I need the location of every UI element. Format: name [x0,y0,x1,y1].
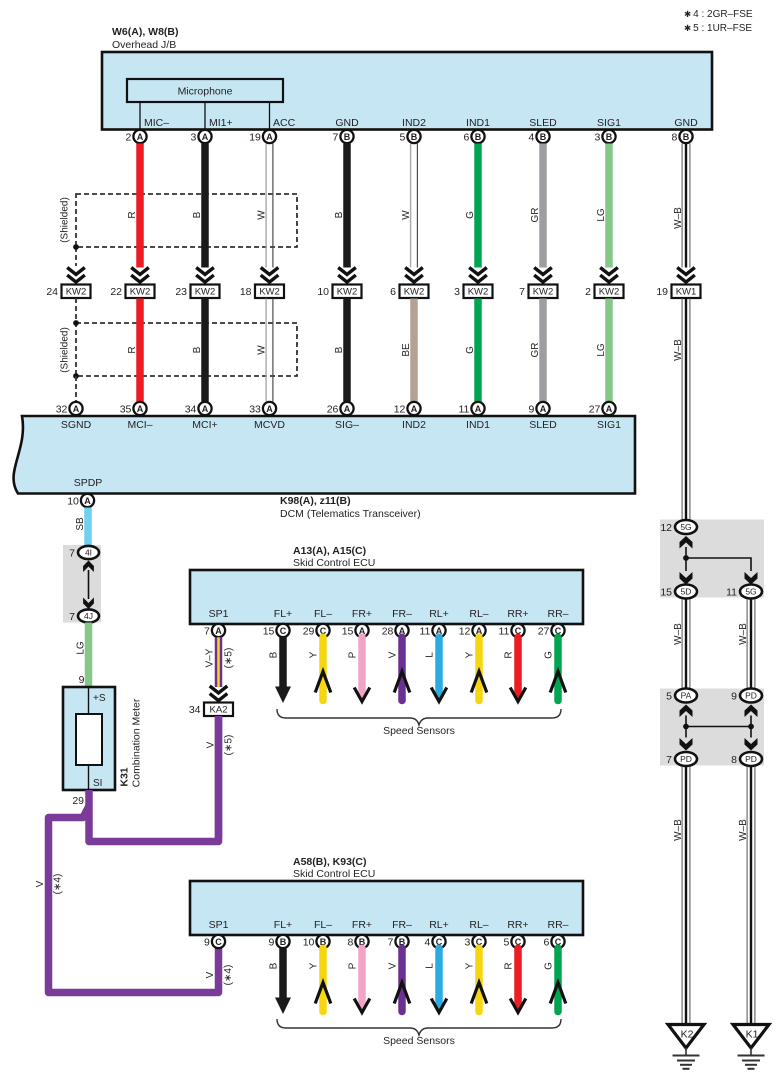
svg-text:IND2: IND2 [402,117,426,129]
svg-text:24: 24 [46,286,58,298]
svg-text:4I: 4I [85,548,92,558]
svg-text:12: 12 [394,403,406,415]
svg-text:K2: K2 [681,1029,694,1041]
svg-text:KW2: KW2 [66,287,87,298]
svg-text:7: 7 [519,286,525,298]
svg-text:W: W [257,345,268,355]
svg-text:G: G [544,962,555,970]
svg-text:W–B: W–B [738,819,749,841]
svg-text:28: 28 [382,625,394,637]
svg-text:RR+: RR+ [507,919,528,931]
svg-text:A: A [540,404,547,414]
svg-text:34: 34 [189,704,201,716]
svg-text:A: A [606,404,613,414]
svg-text:15: 15 [342,625,354,637]
svg-text:B: B [192,211,203,218]
svg-text:3: 3 [454,286,460,298]
svg-text:2: 2 [126,131,132,143]
svg-text:Skid Control ECU: Skid Control ECU [293,868,375,880]
svg-text:BE: BE [401,343,412,357]
svg-text:6: 6 [390,286,396,298]
svg-text:A: A [215,626,222,636]
svg-text:A: A [411,404,418,414]
svg-text:P: P [348,962,359,969]
svg-text:7: 7 [69,547,75,559]
svg-text:19: 19 [249,131,261,143]
svg-text:A: A [73,404,80,414]
svg-text:SGND: SGND [61,419,92,431]
svg-text:29: 29 [72,795,84,807]
svg-text:(∗4): (∗4) [53,874,64,895]
svg-text:W: W [257,210,268,220]
svg-text:B: B [269,962,280,969]
svg-text:RL–: RL– [469,919,488,931]
svg-text:12: 12 [660,522,672,534]
svg-text:W–B: W–B [673,207,684,229]
svg-text:G: G [544,651,555,659]
svg-text:V: V [205,971,216,978]
svg-text:LG: LG [76,641,87,655]
svg-text:A: A [137,132,144,142]
svg-text:L: L [425,963,436,969]
svg-text:SIG1: SIG1 [597,419,621,431]
svg-text:SLED: SLED [529,117,557,129]
svg-text:FL–: FL– [314,608,332,620]
svg-text:RL–: RL– [469,608,488,620]
svg-text:5: 5 [400,131,406,143]
svg-text:B: B [192,346,203,353]
svg-text:11: 11 [726,586,737,598]
svg-text:PD: PD [745,754,757,764]
svg-text:29: 29 [303,625,315,637]
svg-text:5G: 5G [680,522,691,532]
svg-text:Overhead J/B: Overhead J/B [112,39,176,51]
svg-text:PA: PA [681,691,692,701]
svg-text:R: R [504,651,515,658]
svg-text:8: 8 [348,936,354,948]
svg-text:32: 32 [56,403,68,415]
svg-text:V: V [388,651,399,658]
svg-text:RL+: RL+ [429,608,449,620]
svg-text:(∗5): (∗5) [224,735,235,756]
svg-text:+S: +S [93,693,106,704]
svg-text:SIG–: SIG– [335,419,359,431]
svg-text:3: 3 [595,131,601,143]
svg-text:KW2: KW2 [337,287,358,298]
svg-text:G: G [465,346,476,354]
svg-text:IND2: IND2 [402,419,426,431]
svg-text:9: 9 [269,936,275,948]
svg-text:FR+: FR+ [352,919,372,931]
svg-text:Microphone: Microphone [178,86,233,98]
svg-text:7: 7 [333,131,339,143]
svg-text:23: 23 [175,286,187,298]
svg-text:3: 3 [465,936,471,948]
svg-text:33: 33 [249,403,261,415]
svg-text:7: 7 [204,625,210,637]
svg-text:K31: K31 [119,767,131,786]
svg-text:12: 12 [459,625,471,637]
svg-text:22: 22 [110,286,122,298]
svg-text:SIG1: SIG1 [597,117,621,129]
svg-text:A: A [344,404,351,414]
svg-text:R: R [127,211,138,218]
svg-text:DCM (Telematics Transceiver): DCM (Telematics Transceiver) [280,508,421,520]
svg-text:B: B [606,132,613,142]
svg-text:B: B [344,132,351,142]
svg-text:FR–: FR– [392,919,412,931]
svg-text:5G: 5G [745,587,756,597]
svg-text:MIC–: MIC– [144,117,169,129]
svg-text:W: W [401,210,412,220]
svg-text:KW2: KW2 [195,287,216,298]
svg-text:FR–: FR– [392,608,412,620]
svg-text:A: A [475,404,482,414]
svg-text:W–B: W–B [673,623,684,645]
svg-text:6: 6 [464,131,470,143]
svg-text:26: 26 [327,403,339,415]
svg-text:LG: LG [596,343,607,357]
svg-text:A: A [266,132,273,142]
svg-text:9: 9 [204,936,210,948]
svg-text:V: V [35,880,46,887]
svg-text:Y: Y [465,962,476,969]
svg-text:KW1: KW1 [676,287,697,298]
svg-text:KW2: KW2 [599,287,620,298]
svg-text:RR–: RR– [547,608,568,620]
svg-text:FL–: FL– [314,919,332,931]
svg-text:PD: PD [745,691,757,701]
svg-text:A: A [84,496,91,506]
svg-text:B: B [334,346,345,353]
svg-text:5: 5 [504,936,510,948]
svg-text:MCI–: MCI– [127,419,152,431]
svg-text:G: G [465,211,476,219]
svg-text:7: 7 [666,754,672,766]
svg-text:10: 10 [303,936,315,948]
svg-text:FL+: FL+ [274,608,292,620]
svg-text:Y: Y [309,962,320,969]
svg-text:RR+: RR+ [507,608,528,620]
svg-text:27: 27 [589,403,601,415]
svg-text:34: 34 [185,403,197,415]
svg-text:27: 27 [538,625,550,637]
svg-text:V–Y: V–Y [205,648,216,667]
svg-text:(Shielded): (Shielded) [60,327,71,373]
svg-text:K1: K1 [746,1029,759,1041]
svg-text:KW2: KW2 [533,287,554,298]
svg-text:A: A [202,404,209,414]
svg-text:SP1: SP1 [209,919,229,931]
svg-text:9: 9 [731,690,737,702]
svg-text:8: 8 [672,131,678,143]
svg-text:SP1: SP1 [209,608,229,620]
svg-text:B: B [269,651,280,658]
svg-text:W–B: W–B [738,623,749,645]
svg-text:4: 4 [425,936,431,948]
svg-text:Speed Sensors: Speed Sensors [383,725,455,737]
svg-text:Combination Meter: Combination Meter [131,698,143,787]
svg-text:LG: LG [596,208,607,222]
svg-text:FR+: FR+ [352,608,372,620]
svg-text:FL+: FL+ [274,919,292,931]
svg-text:B: B [411,132,418,142]
svg-text:MCVD: MCVD [254,419,285,431]
svg-text:Skid Control ECU: Skid Control ECU [293,557,375,569]
svg-text:B: B [540,132,547,142]
svg-text:W–B: W–B [673,819,684,841]
svg-text:MCI+: MCI+ [192,419,217,431]
svg-text:11: 11 [419,625,430,637]
svg-text:(Shielded): (Shielded) [60,197,71,243]
svg-text:15: 15 [660,586,672,598]
svg-text:K98(A), z11(B): K98(A), z11(B) [280,495,351,507]
svg-text:KW2: KW2 [130,287,151,298]
svg-text:RL+: RL+ [429,919,449,931]
svg-text:35: 35 [120,403,132,415]
svg-text:✱ 5 : 1UR–FSE: ✱ 5 : 1UR–FSE [684,23,752,34]
svg-text:GR: GR [530,208,541,223]
svg-text:L: L [425,652,436,658]
svg-text:B: B [280,937,287,947]
svg-text:10: 10 [67,495,79,507]
svg-text:W6(A), W8(B): W6(A), W8(B) [112,26,179,38]
svg-text:9: 9 [529,403,535,415]
svg-text:11: 11 [458,403,469,415]
svg-text:8: 8 [731,754,737,766]
svg-text:KA2: KA2 [210,705,228,716]
svg-text:C: C [215,937,222,947]
svg-text:KW2: KW2 [404,287,425,298]
svg-text:V: V [206,741,217,748]
svg-text:4: 4 [529,131,535,143]
svg-text:B: B [334,211,345,218]
svg-text:SPDP: SPDP [74,477,103,489]
svg-text:10: 10 [317,286,329,298]
svg-text:A58(B), K93(C): A58(B), K93(C) [293,856,367,868]
svg-text:SB: SB [75,517,86,531]
svg-text:18: 18 [240,286,252,298]
svg-text:SLED: SLED [529,419,557,431]
svg-text:B: B [475,132,482,142]
svg-text:SI: SI [93,778,102,789]
svg-text:7: 7 [69,611,75,623]
svg-text:P: P [348,651,359,658]
svg-text:11: 11 [498,625,509,637]
svg-text:R: R [504,962,515,969]
svg-text:(∗4): (∗4) [223,965,234,986]
svg-text:2: 2 [585,286,591,298]
svg-text:MI1+: MI1+ [209,117,233,129]
svg-text:(∗5): (∗5) [224,648,235,669]
svg-text:GND: GND [674,117,698,129]
svg-text:Y: Y [309,651,320,658]
svg-text:ACC: ACC [273,117,296,129]
svg-text:R: R [127,346,138,353]
svg-text:PD: PD [680,754,692,764]
svg-text:19: 19 [656,286,668,298]
svg-text:GR: GR [530,343,541,358]
svg-text:RR–: RR– [547,919,568,931]
svg-text:KW2: KW2 [259,287,280,298]
svg-text:A13(A), A15(C): A13(A), A15(C) [293,545,366,557]
svg-text:V: V [388,962,399,969]
svg-text:Speed Sensors: Speed Sensors [383,1035,455,1047]
svg-text:IND1: IND1 [466,419,490,431]
svg-text:Y: Y [465,651,476,658]
svg-text:3: 3 [191,131,197,143]
svg-text:A: A [137,404,144,414]
svg-text:C: C [280,626,287,636]
svg-text:KW2: KW2 [468,287,489,298]
svg-text:7: 7 [388,936,394,948]
svg-text:5: 5 [666,690,672,702]
svg-text:9: 9 [79,674,85,686]
svg-text:IND1: IND1 [466,117,490,129]
svg-text:A: A [202,132,209,142]
svg-text:5D: 5D [681,587,692,597]
svg-text:W–B: W–B [673,339,684,361]
svg-text:15: 15 [263,625,275,637]
svg-text:GND: GND [335,117,359,129]
svg-text:6: 6 [544,936,550,948]
svg-text:B: B [683,132,690,142]
svg-text:4J: 4J [84,611,93,621]
svg-text:✱ 4 : 2GR–FSE: ✱ 4 : 2GR–FSE [684,9,753,20]
svg-text:A: A [266,404,273,414]
